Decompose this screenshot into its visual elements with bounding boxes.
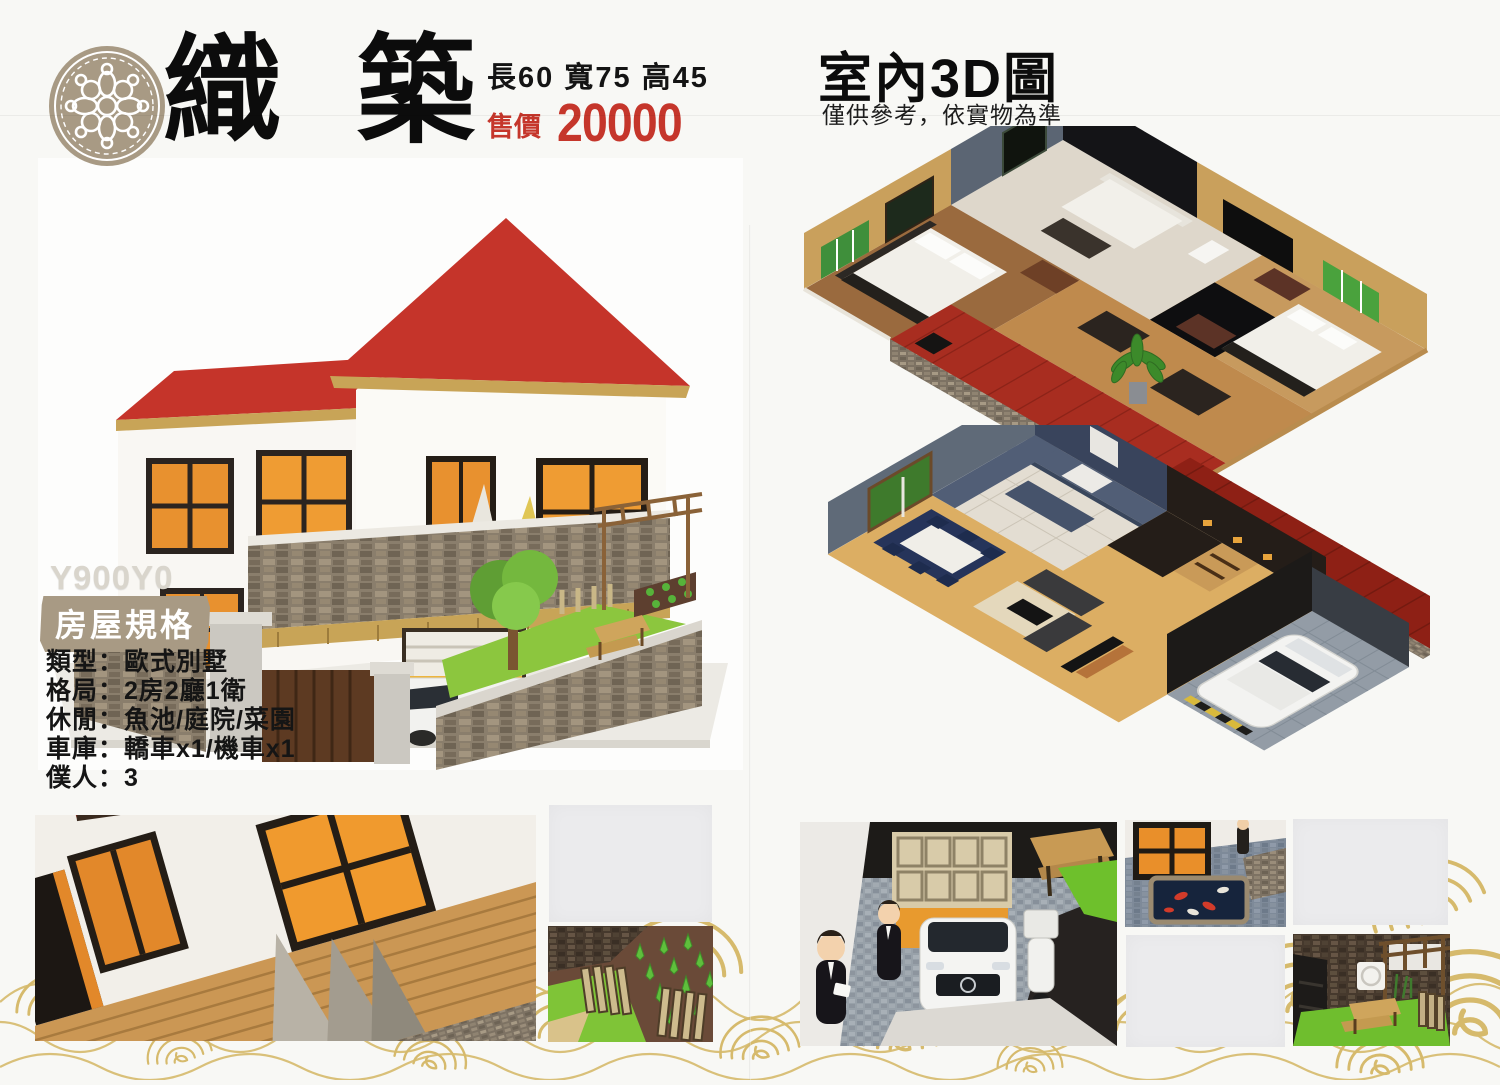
brand-medallion-icon — [46, 44, 168, 168]
photo-blank-left — [549, 805, 712, 922]
price-value: 20000 — [557, 96, 682, 150]
spec-badge: 房屋規格 — [40, 596, 210, 652]
interior-3d-subtitle: 僅供參考，依實物為準 — [822, 96, 1062, 130]
photo-vegetable-garden — [548, 926, 713, 1042]
size-specs: 長60 寬75 高45 — [487, 54, 709, 96]
spec-line-type: 類型：歐式別墅 — [46, 648, 296, 677]
page-fold-line — [749, 225, 751, 1080]
photo-balcony-closeup — [35, 815, 536, 1041]
photo-courtyard — [1293, 934, 1450, 1046]
photo-blank-top-right — [1293, 819, 1448, 925]
spec-line-leisure: 休閒：魚池/庭院/菜園 — [46, 706, 296, 735]
spec-list: 類型：歐式別墅 格局：2房2廳1衛 休閒：魚池/庭院/菜園 車庫：轎車x1/機車… — [46, 648, 296, 793]
spec-line-garage: 車庫：轎車x1/機車x1 — [46, 735, 296, 764]
price-label: 售價 — [487, 105, 541, 150]
photo-blank-bottom-middle — [1126, 935, 1285, 1047]
spec-line-layout: 格局：2房2廳1衛 — [46, 677, 296, 706]
spec-line-servants: 僕人：3 — [46, 764, 296, 793]
photo-floorplan-lower — [785, 425, 1430, 787]
scan-artifact-line — [0, 115, 1500, 116]
photo-fish-pond — [1125, 820, 1286, 927]
price-row: 售價 20000 — [487, 96, 702, 150]
model-code: Y900Y0 — [50, 559, 173, 597]
photo-garage-figurines — [800, 822, 1117, 1046]
